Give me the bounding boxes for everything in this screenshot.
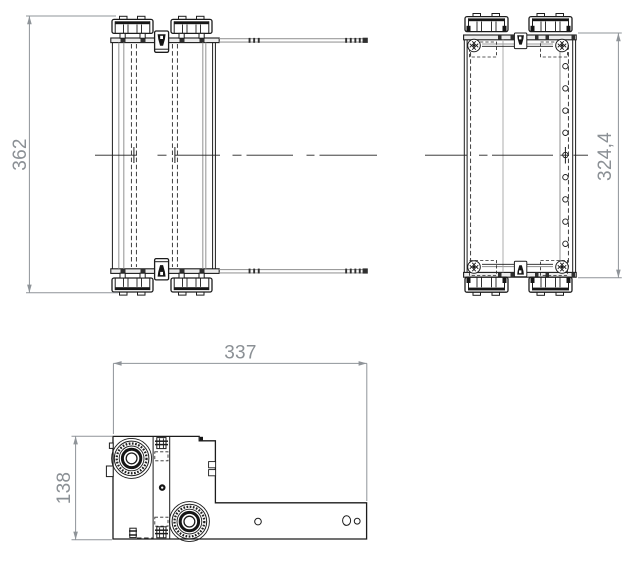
dimension-plan-width-value: 337 xyxy=(224,343,257,364)
dimension-plan-depth: 138 xyxy=(54,436,112,540)
front-bottom-rail xyxy=(219,268,368,273)
plan-view xyxy=(106,436,366,541)
dimension-front-height: 362 xyxy=(10,16,118,293)
plan-plate-holes xyxy=(255,516,360,526)
technical-drawing-canvas: 362 324,4 337 138 xyxy=(0,0,640,568)
side-cross-members xyxy=(470,42,568,276)
side-feet xyxy=(465,14,572,296)
technical-drawing-page: 362 324,4 337 138 xyxy=(0,0,640,568)
dimension-plan-depth-value: 138 xyxy=(54,472,75,505)
dimension-front-height-value: 362 xyxy=(10,138,31,171)
front-hidden-lines xyxy=(131,44,177,267)
plan-roller-lower xyxy=(169,502,209,542)
plan-bottom-left-bolt xyxy=(129,528,137,537)
side-body-columns xyxy=(464,40,575,273)
front-top-rail xyxy=(219,38,368,43)
plan-roller-upper xyxy=(112,438,152,478)
side-corner-bolts xyxy=(468,39,569,273)
dimension-plan-width: 337 xyxy=(113,343,366,502)
front-body-columns xyxy=(112,43,215,269)
plan-left-tab xyxy=(106,466,113,477)
front-view xyxy=(95,16,377,295)
front-band-ticks xyxy=(121,38,205,273)
side-view xyxy=(425,14,588,296)
dimension-side-height-value: 324,4 xyxy=(595,132,616,181)
plan-edge-clamps xyxy=(209,462,216,476)
front-feet xyxy=(112,16,212,295)
plan-outline xyxy=(113,436,367,539)
plan-center-pin xyxy=(159,484,166,491)
plan-left-notch xyxy=(109,443,113,448)
